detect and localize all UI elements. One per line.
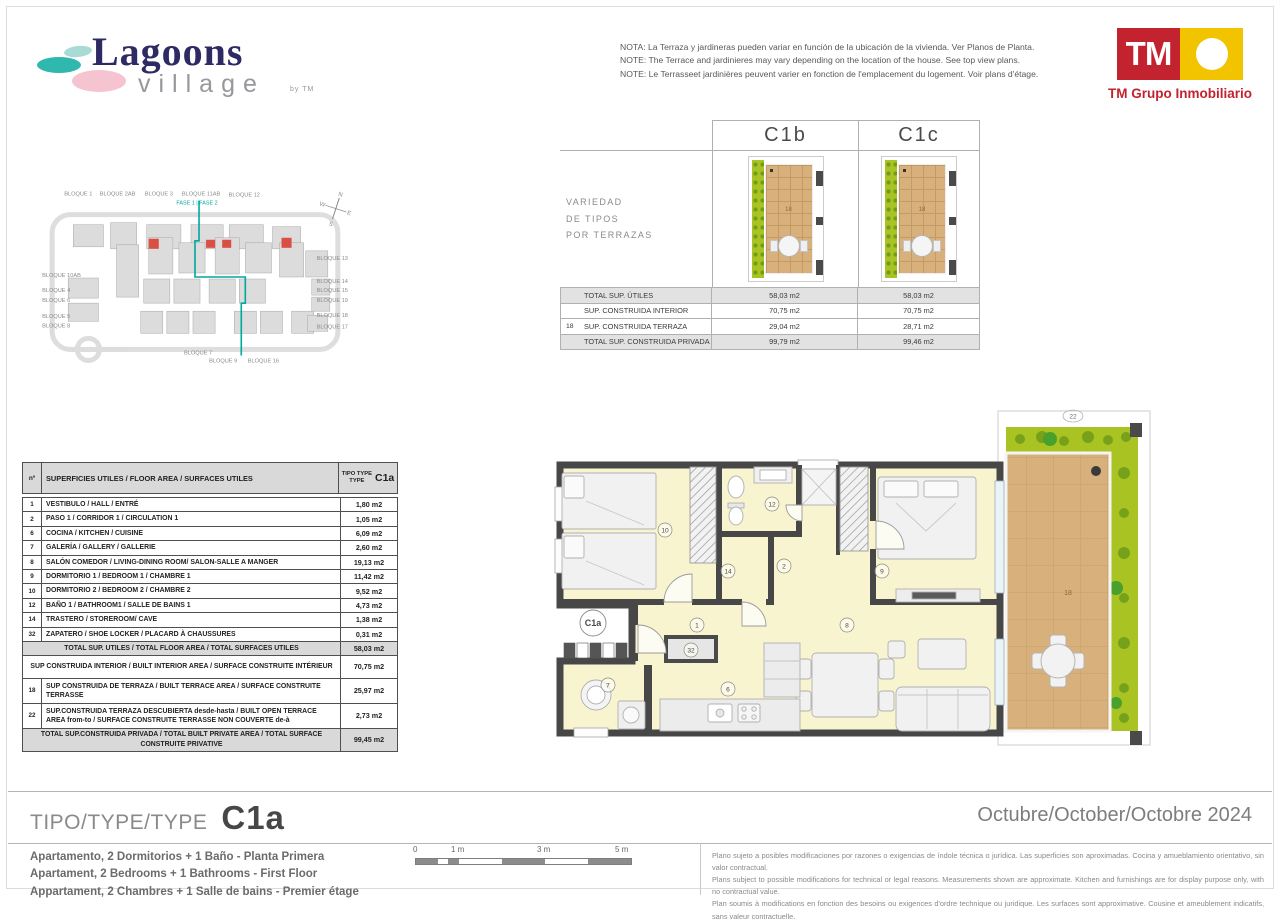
row-number: 1 (23, 498, 42, 511)
room-number-9: 9 (880, 568, 884, 575)
terrace-thumb-c1c: 18 (858, 151, 980, 287)
brand-logo-by: by TM (290, 86, 314, 93)
row-label: SUP.CONSTRUIDA TERRAZA DESCUBIERTA desde… (42, 704, 340, 728)
unit-label: C1a (580, 610, 606, 636)
site-plan-block-label: BLOQUE 19 (317, 298, 348, 304)
surfaces-table-body: 1VESTIBULO / HALL / ENTRÉ1,80 m22PASO 1 … (22, 497, 398, 752)
value-c1c: 70,75 m2 (858, 304, 980, 319)
svg-text:S: S (328, 221, 334, 228)
type-value-large: C1a (221, 799, 285, 837)
terrace: 22 18 (998, 410, 1150, 745)
site-plan-block-label: BLOQUE 3 (145, 192, 173, 198)
row-label: SUP CONSTRUIDA DE TERRAZA / BUILT TERRAC… (42, 679, 340, 703)
site-plan-block-label: BLOQUE 16 (248, 359, 279, 365)
disclaimer-es: Plano sujeto a posibles modificaciones p… (712, 850, 1264, 874)
value-c1c: 99,46 m2 (858, 335, 980, 350)
col-number-header: nº (23, 463, 42, 493)
value-c1b: 70,75 m2 (712, 304, 858, 319)
scale-bar: 0 1 m 3 m 5 m (415, 845, 630, 871)
row-value: 0,31 m2 (340, 628, 397, 641)
svg-text:W: W (319, 201, 327, 209)
brand-logo-subtitle: village (138, 70, 265, 99)
surfaces-row: 2PASO 1 / CORRIDOR 1 / CIRCULATION 11,05… (22, 511, 398, 526)
description-en: Apartament, 2 Bedrooms + 1 Bathrooms - F… (30, 866, 359, 883)
site-plan-block-label: BLOQUE 17 (317, 324, 348, 330)
row-label: COCINA / KITCHEN / CUISINE (42, 527, 340, 540)
room-number-14: 14 (724, 568, 732, 575)
tm-logo-squares: TM (1117, 28, 1243, 80)
scale-tick-3m: 3 m (537, 845, 550, 854)
row-label: PASO 1 / CORRIDOR 1 / CIRCULATION 1 (42, 512, 340, 525)
surfaces-row: 9DORMITORIO 1 / BEDROOM 1 / CHAMBRE 111,… (22, 569, 398, 584)
brand-logo-name: Lagoons (92, 28, 244, 75)
value-c1b: 58,03 m2 (712, 288, 858, 303)
row-number: 18 (23, 679, 42, 703)
type-value: C1a (375, 472, 394, 484)
surfaces-row: TOTAL SUP.CONSTRUIDA PRIVADA / TOTAL BUI… (22, 728, 398, 752)
terrace-tiles: 18 (898, 164, 946, 274)
site-plan-block-label: BLOQUE 7 (184, 350, 212, 356)
variant-column-c1b: C1b (712, 120, 858, 150)
surfaces-row: 12BAÑO 1 / BATHROOM1 / SALLE DE BAINS 14… (22, 598, 398, 613)
jardiniere-strip (885, 160, 897, 278)
value-c1c: 28,71 m2 (858, 319, 980, 334)
row-label: TRASTERO / STOREROOM/ CAVE (42, 613, 340, 626)
variants-heading: VARIEDAD DE TIPOS POR TERRAZAS (560, 151, 712, 287)
surfaces-row: 8SALÓN COMEDOR / LIVING-DINING ROOM/ SAL… (22, 555, 398, 570)
site-plan-block-label: BLOQUE 4 (42, 288, 70, 294)
date-label: Octubre/October/Octobre 2024 (977, 804, 1252, 827)
terrace-number-label: 18 (1064, 590, 1072, 597)
surfaces-row: 7GALERÍA / GALLERY / GALLERIE2,60 m2 (22, 540, 398, 555)
variants-row: 18SUP. CONSTRUIDA TERRAZA29,04 m228,71 m… (560, 319, 980, 335)
variants-row: SUP. CONSTRUIDA INTERIOR70,75 m270,75 m2 (560, 304, 980, 320)
value-c1c: 58,03 m2 (858, 288, 980, 303)
tm-circle-icon (1196, 38, 1228, 70)
tm-yellow-square (1180, 28, 1243, 80)
row-number: 8 (23, 556, 42, 569)
legal-disclaimer: Plano sujeto a posibles modificaciones p… (712, 850, 1264, 923)
row-value: 25,97 m2 (340, 679, 397, 703)
site-plan-block-label: BLOQUE 13 (317, 256, 348, 262)
scale-bar-segments (415, 858, 632, 865)
row-label: DORMITORIO 2 / BEDROOM 2 / CHAMBRE 2 (42, 584, 340, 597)
site-plan-block-label: BLOQUE 18 (317, 313, 348, 319)
note-line-en: NOTE: The Terrace and jardinieres may va… (620, 54, 1095, 67)
col-type-header: TIPO TYPE TYPE C1a (338, 463, 397, 493)
footer-divider-top (8, 791, 1272, 792)
note-line-fr: NOTE: Le Terrasseet jardinières peuvent … (620, 68, 1095, 81)
row-value: 9,52 m2 (340, 584, 397, 597)
svg-text:E: E (346, 210, 352, 217)
site-plan: BLOQUE 1BLOQUE 2ABBLOQUE 3BLOQUE 11ABBLO… (28, 182, 360, 374)
row-number: 2 (23, 512, 42, 525)
room-number-8: 8 (845, 622, 849, 629)
scale-tick-0: 0 (413, 845, 417, 854)
row-value: 6,09 m2 (340, 527, 397, 540)
logo-ellipse-small (64, 45, 93, 59)
row-value: 1,80 m2 (340, 498, 397, 511)
row-number: 10 (23, 584, 42, 597)
apartment-description: Apartamento, 2 Dormitorios + 1 Baño - Pl… (30, 849, 359, 901)
type-prefix: TIPO/TYPE/TYPE (30, 811, 207, 835)
row-value: 2,60 m2 (340, 541, 397, 554)
room-number-6: 6 (726, 686, 730, 693)
tm-monogram: TM (1117, 28, 1180, 80)
tm-logo: TM TM Grupo Inmobiliario (1100, 28, 1260, 101)
room-number-10: 10 (661, 527, 669, 534)
surfaces-row: 10DORMITORIO 2 / BEDROOM 2 / CHAMBRE 29,… (22, 583, 398, 598)
row-number: 12 (23, 599, 42, 612)
svg-text:C1a: C1a (585, 618, 603, 628)
variants-row: TOTAL SUP. ÚTILES58,03 m258,03 m2 (560, 287, 980, 304)
jardiniere-strip (752, 160, 764, 278)
jardiniere-number-label: 22 (1069, 414, 1077, 421)
surfaces-table: nº SUPERFICIES UTILES / FLOOR AREA / SUR… (22, 462, 398, 752)
row-label: ZAPATERO / SHOE LOCKER / PLACARD À CHAUS… (42, 628, 340, 641)
surfaces-row: 6COCINA / KITCHEN / CUISINE6,09 m2 (22, 526, 398, 541)
room-number-7: 7 (606, 682, 610, 689)
variants-body: VARIEDAD DE TIPOS POR TERRAZAS 18 18 (560, 150, 980, 287)
type-title: TIPO/TYPE/TYPE C1a (30, 799, 285, 837)
fase-label: FASE 1 | FASE 2 (176, 201, 217, 207)
tm-company-name: TM Grupo Inmobiliario (1100, 86, 1260, 101)
row-value: 19,13 m2 (340, 556, 397, 569)
site-plan-block-label: BLOQUE 1 (64, 192, 92, 198)
value-c1b: 29,04 m2 (712, 319, 858, 334)
site-plan-block-label: BLOQUE 9 (209, 359, 237, 365)
terrace-dot (903, 169, 906, 172)
variants-header: C1b C1c (560, 120, 980, 150)
site-plan-block-label: BLOQUE 14 (317, 279, 348, 285)
note-line-es: NOTA: La Terraza y jardineras pueden var… (620, 41, 1095, 54)
site-plan-block-label: BLOQUE 6 (42, 298, 70, 304)
surfaces-row: 22SUP.CONSTRUIDA TERRAZA DESCUBIERTA des… (22, 703, 398, 729)
row-value: 1,38 m2 (340, 613, 397, 626)
value-c1b: 99,79 m2 (712, 335, 858, 350)
site-plan-block-label: BLOQUE 5 (42, 314, 70, 320)
site-plan-block-label: BLOQUE 2AB (100, 192, 136, 198)
room-number-12: 12 (768, 501, 776, 508)
surfaces-row: TOTAL SUP. UTILES / TOTAL FLOOR AREA / T… (22, 641, 398, 656)
col-label-header: SUPERFICIES UTILES / FLOOR AREA / SURFAC… (42, 463, 338, 493)
row-value: 70,75 m2 (340, 656, 397, 678)
svg-text:N: N (337, 192, 343, 199)
surfaces-row: 1VESTIBULO / HALL / ENTRÉ1,80 m2 (22, 497, 398, 512)
variants-rows: TOTAL SUP. ÚTILES58,03 m258,03 m2SUP. CO… (560, 287, 980, 350)
row-value: 11,42 m2 (340, 570, 397, 583)
surfaces-table-header: nº SUPERFICIES UTILES / FLOOR AREA / SUR… (22, 462, 398, 494)
row-value: 99,45 m2 (340, 729, 397, 751)
description-es: Apartamento, 2 Dormitorios + 1 Baño - Pl… (30, 849, 359, 866)
row-label: DORMITORIO 1 / BEDROOM 1 / CHAMBRE 1 (42, 570, 340, 583)
footer-vertical-divider (700, 843, 701, 895)
disclaimer-fr: Plan soumis à modifications en fonction … (712, 898, 1264, 922)
room-number-2: 2 (782, 563, 786, 570)
terrace-floor (1006, 453, 1110, 731)
surfaces-row: 14TRASTERO / STOREROOM/ CAVE1,38 m2 (22, 612, 398, 627)
row-value: 58,03 m2 (340, 642, 397, 655)
floor-plan: 22 18 (540, 403, 1160, 788)
surfaces-row: SUP CONSTRUIDA INTERIOR / BUILT INTERIOR… (22, 655, 398, 679)
variants-row: TOTAL SUP. CONSTRUIDA PRIVADA99,79 m299,… (560, 335, 980, 351)
site-plan-block-label: BLOQUE 15 (317, 288, 348, 294)
row-number: 9 (23, 570, 42, 583)
terrace-dot (770, 169, 773, 172)
row-number: 14 (23, 613, 42, 626)
landing-hatch (564, 643, 627, 658)
row-label: SALÓN COMEDOR / LIVING-DINING ROOM/ SALO… (42, 556, 340, 569)
row-value: 4,73 m2 (340, 599, 397, 612)
scale-tick-5m: 5 m (615, 845, 628, 854)
row-number: 6 (23, 527, 42, 540)
row-value: 1,05 m2 (340, 512, 397, 525)
surfaces-row: 18SUP CONSTRUIDA DE TERRAZA / BUILT TERR… (22, 678, 398, 704)
scale-tick-1m: 1 m (451, 845, 464, 854)
terrace-tiles: 18 (765, 164, 813, 274)
terrace-table-icon (911, 235, 933, 257)
terrace-drain-dot (1091, 466, 1101, 476)
site-plan-block-label: BLOQUE 10AB (42, 273, 81, 279)
site-plan-block-label: BLOQUE 12 (229, 193, 260, 199)
logo-ellipse-teal (37, 57, 81, 73)
footer-divider-bottom (8, 843, 1272, 844)
description-fr: Appartament, 2 Chambres + 1 Salle de bai… (30, 884, 359, 901)
site-plan-block-label: BLOQUE 8 (42, 323, 70, 329)
terrace-sliding-doors (995, 481, 1004, 705)
row-number: 7 (23, 541, 42, 554)
site-plan-block-label: BLOQUE 11AB (182, 192, 221, 198)
row-value: 2,73 m2 (340, 704, 397, 728)
terrace-table-icon (778, 235, 800, 257)
surfaces-row: 32ZAPATERO / SHOE LOCKER / PLACARD À CHA… (22, 627, 398, 642)
variant-column-c1c: C1c (858, 120, 980, 150)
row-label: BAÑO 1 / BATHROOM1 / SALLE DE BAINS 1 (42, 599, 340, 612)
room-number-1: 1 (695, 622, 699, 629)
room-number-32: 32 (687, 647, 695, 654)
row-number: 32 (23, 628, 42, 641)
terrace-thumb-c1b: 18 (712, 151, 858, 287)
header-notes: NOTA: La Terraza y jardineras pueden var… (620, 41, 1095, 81)
row-label: GALERÍA / GALLERY / GALLERIE (42, 541, 340, 554)
row-number: 22 (23, 704, 42, 728)
row-label: VESTIBULO / HALL / ENTRÉ (42, 498, 340, 511)
terrace-variants-panel: C1b C1c VARIEDAD DE TIPOS POR TERRAZAS 1… (560, 120, 980, 350)
